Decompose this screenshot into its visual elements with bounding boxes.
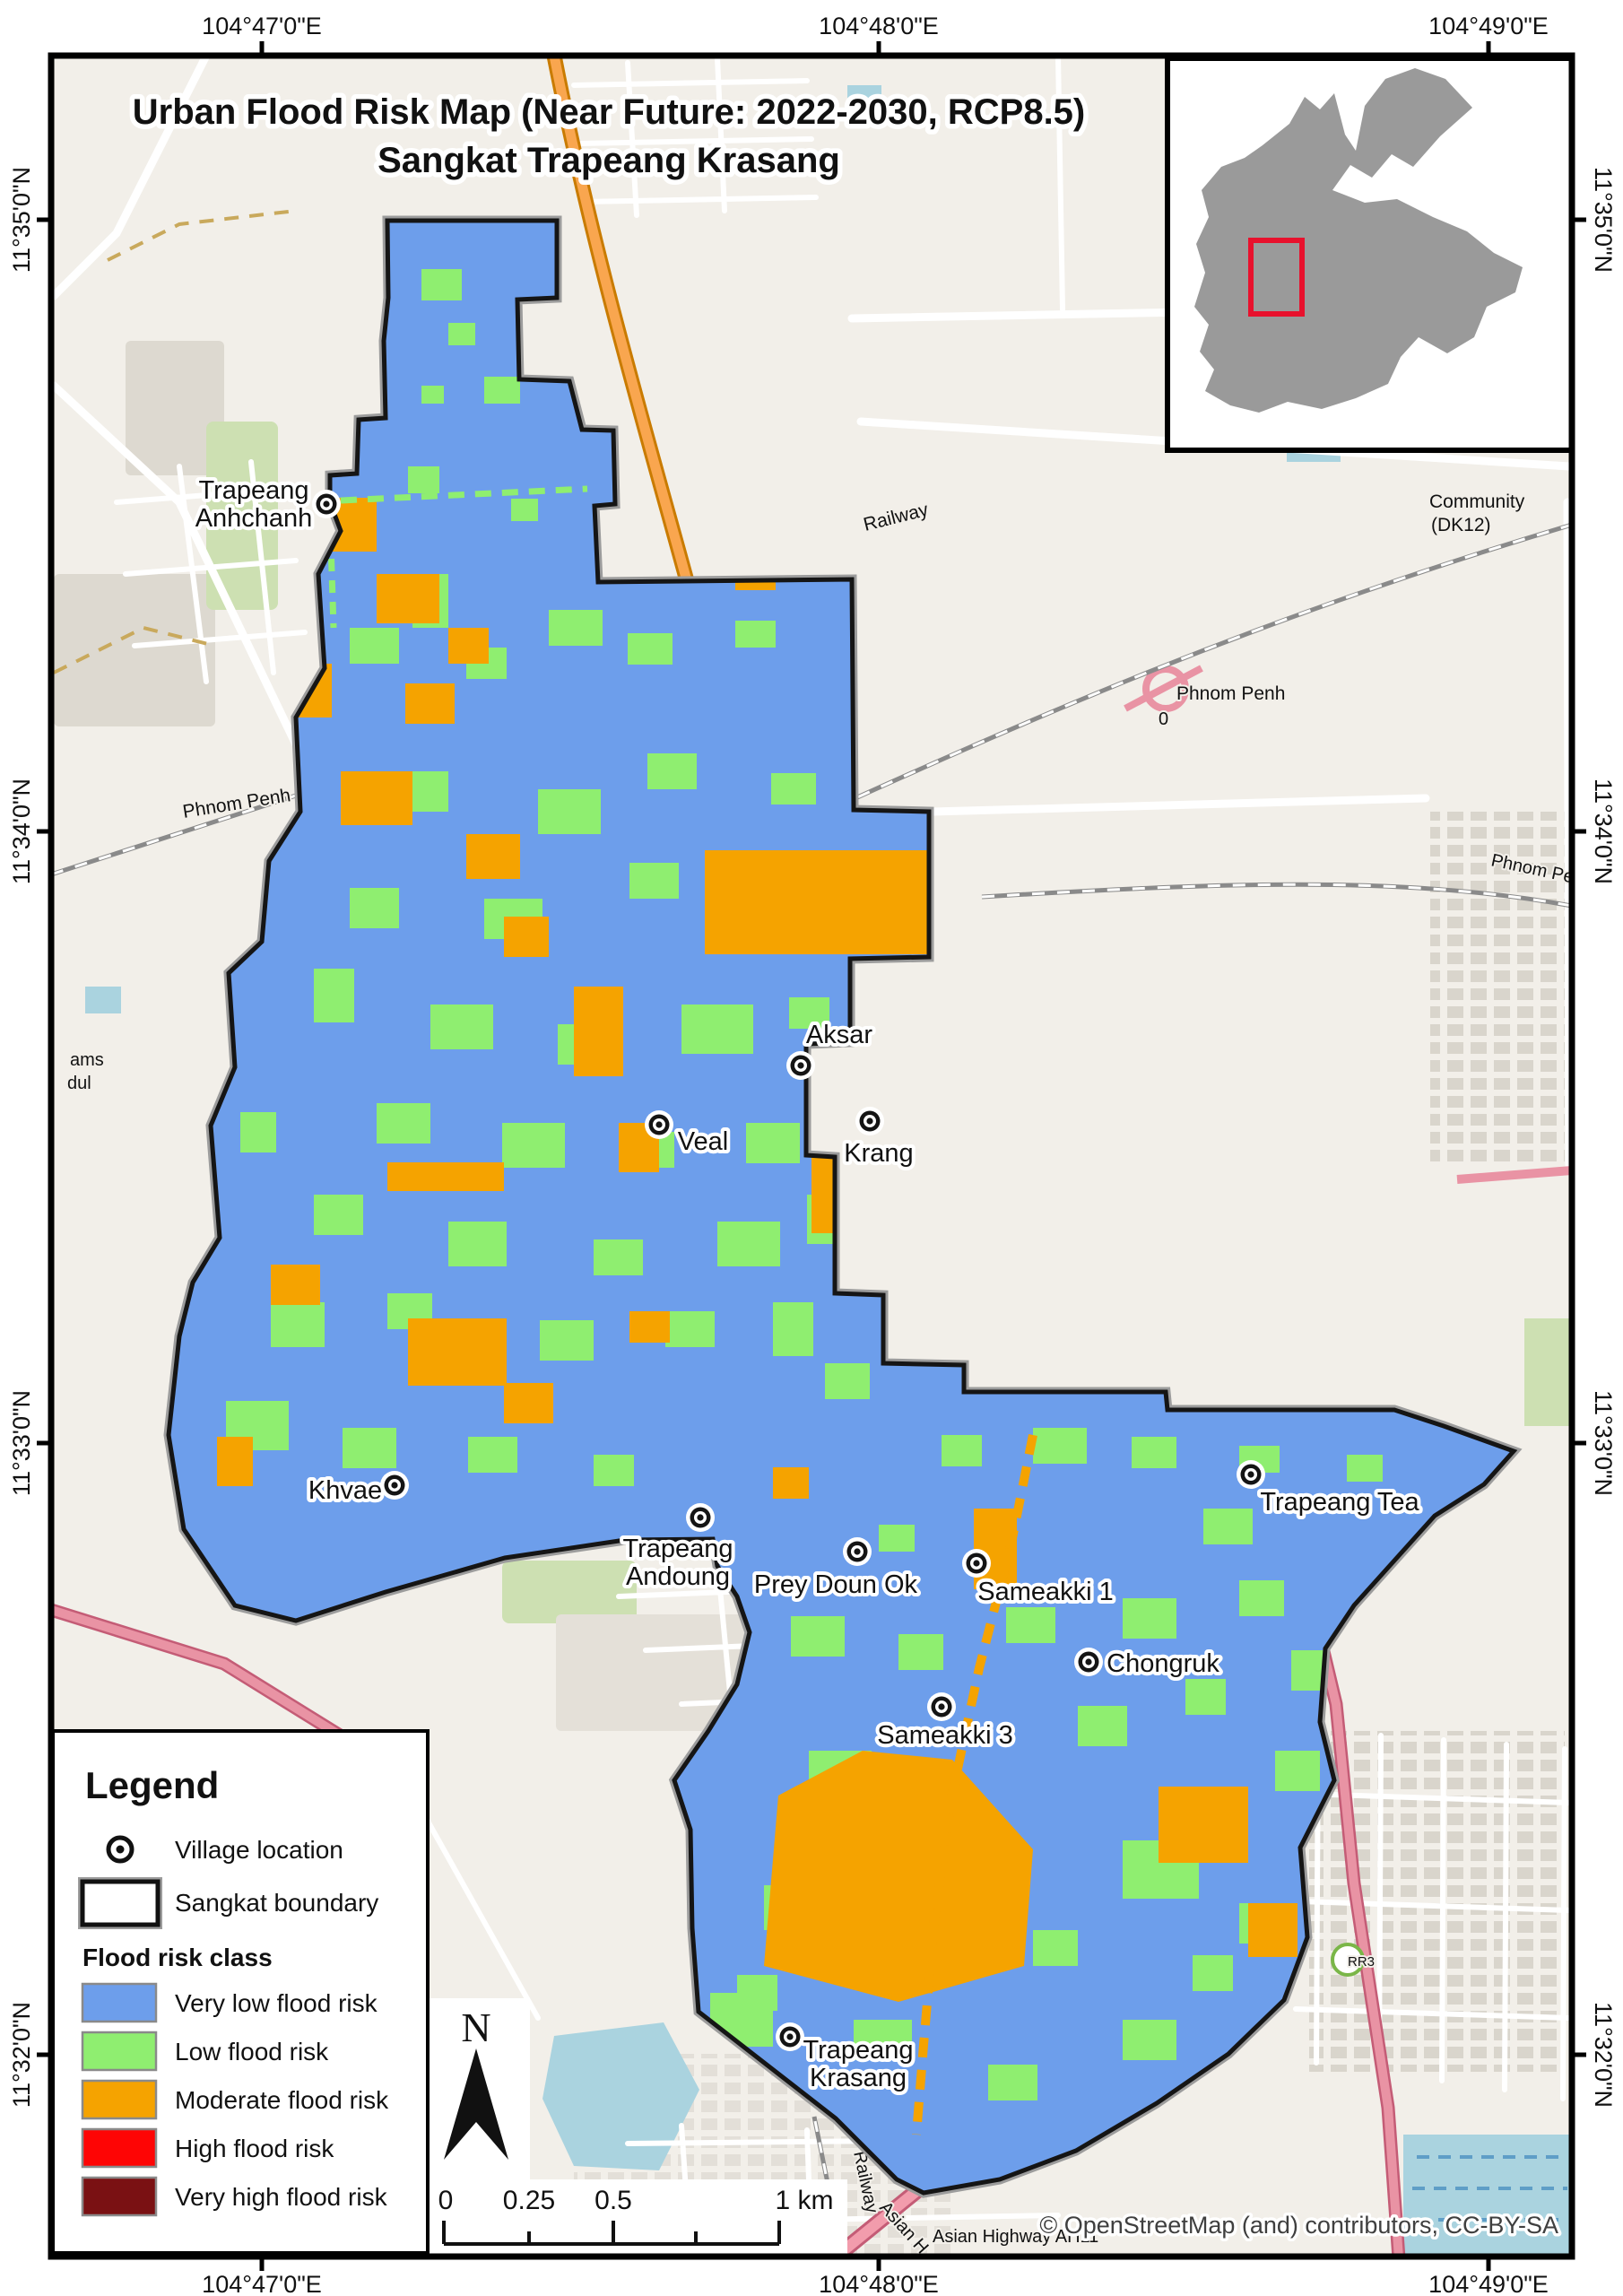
village-label: Veal bbox=[678, 1127, 728, 1156]
longitude-label: 104°47'0"E bbox=[202, 2271, 322, 2296]
legend-boundary-symbol bbox=[82, 1882, 158, 1925]
village-label: Aksar bbox=[806, 1021, 872, 1049]
legend-title: Legend bbox=[85, 1764, 219, 1806]
map-title-line2: Sangkat Trapeang Krasang bbox=[378, 141, 840, 180]
legend-flood-heading: Flood risk class bbox=[82, 1944, 273, 1971]
legend-swatch-2 bbox=[82, 2032, 156, 2070]
flood-risk-map: Phnom Penh - Poipet RailwayRailwayCommun… bbox=[0, 0, 1623, 2296]
legend-class-label: Very high flood risk bbox=[175, 2183, 388, 2211]
basemap-label: RR3 bbox=[1348, 1954, 1375, 1970]
latitude-label: 11°35'0"N bbox=[8, 167, 35, 273]
longitude-label: 104°48'0"E bbox=[819, 13, 939, 39]
legend: Legend Village location Sangkat boundary… bbox=[53, 1731, 428, 2253]
latitude-label: 11°33'0"N bbox=[8, 1390, 35, 1496]
legend-swatch-4 bbox=[82, 2129, 156, 2167]
legend-class-label: Moderate flood risk bbox=[175, 2086, 389, 2114]
basemap-label: (DK12) bbox=[1431, 515, 1491, 535]
village-label: TrapeangAnhchanh bbox=[195, 476, 313, 533]
village-label: TrapeangKrasang bbox=[803, 2036, 913, 2092]
village-label: Prey Doun Ok bbox=[754, 1570, 918, 1599]
legend-swatch-5 bbox=[82, 2178, 156, 2215]
longitude-label: 104°49'0"E bbox=[1428, 13, 1549, 39]
basemap-label: ams bbox=[70, 1050, 104, 1070]
scale-label: 0.25 bbox=[503, 2186, 555, 2215]
legend-village-label: Village location bbox=[175, 1836, 343, 1864]
legend-village-symbol bbox=[108, 1838, 132, 1861]
inset-map bbox=[1167, 58, 1572, 450]
longitude-label: 104°47'0"E bbox=[202, 13, 322, 39]
basemap-label: Community bbox=[1429, 491, 1525, 512]
village-label: Krang bbox=[844, 1139, 913, 1168]
latitude-label: 11°32'0"N bbox=[1590, 2002, 1617, 2108]
longitude-label: 104°48'0"E bbox=[819, 2271, 939, 2296]
longitude-label: 104°49'0"E bbox=[1428, 2271, 1549, 2296]
latitude-label: 11°35'0"N bbox=[1590, 167, 1617, 273]
village-label: Khvae bbox=[308, 1476, 382, 1505]
basemap-label: Phnom Penh bbox=[1176, 683, 1285, 704]
village-label: Sameakki 3 bbox=[877, 1721, 1013, 1750]
legend-class-label: Very low flood risk bbox=[175, 1989, 378, 2017]
legend-boundary-label: Sangkat boundary bbox=[175, 1889, 378, 1917]
village-label: Trapeang Tea bbox=[1260, 1488, 1419, 1517]
scale-label: 0.5 bbox=[595, 2186, 632, 2215]
village-chongruk: Chongruk bbox=[1074, 1648, 1219, 1678]
village-label: Sameakki 1 bbox=[977, 1578, 1114, 1606]
village-label: TrapeangAndoung bbox=[622, 1535, 733, 1591]
latitude-label: 11°34'0"N bbox=[8, 778, 35, 884]
legend-swatch-3 bbox=[82, 2081, 156, 2118]
map-title-line1: Urban Flood Risk Map (Near Future: 2022-… bbox=[133, 92, 1086, 132]
scale-label: 1 km bbox=[775, 2186, 833, 2215]
attribution: © OpenStreetMap (and) contributors, CC-B… bbox=[1039, 2212, 1558, 2239]
latitude-label: 11°33'0"N bbox=[1590, 1390, 1617, 1496]
legend-class-label: Low flood risk bbox=[175, 2038, 329, 2066]
village-label: Chongruk bbox=[1107, 1649, 1219, 1678]
legend-swatch-1 bbox=[82, 1984, 156, 2022]
latitude-label: 11°32'0"N bbox=[8, 2002, 35, 2108]
legend-class-label: High flood risk bbox=[175, 2135, 334, 2162]
basemap-label: 0 bbox=[1159, 709, 1168, 729]
north-label: N bbox=[461, 2005, 490, 2050]
basemap-label: dul bbox=[67, 1074, 91, 1093]
scale-label: 0 bbox=[438, 2186, 454, 2215]
latitude-label: 11°34'0"N bbox=[1590, 778, 1617, 884]
